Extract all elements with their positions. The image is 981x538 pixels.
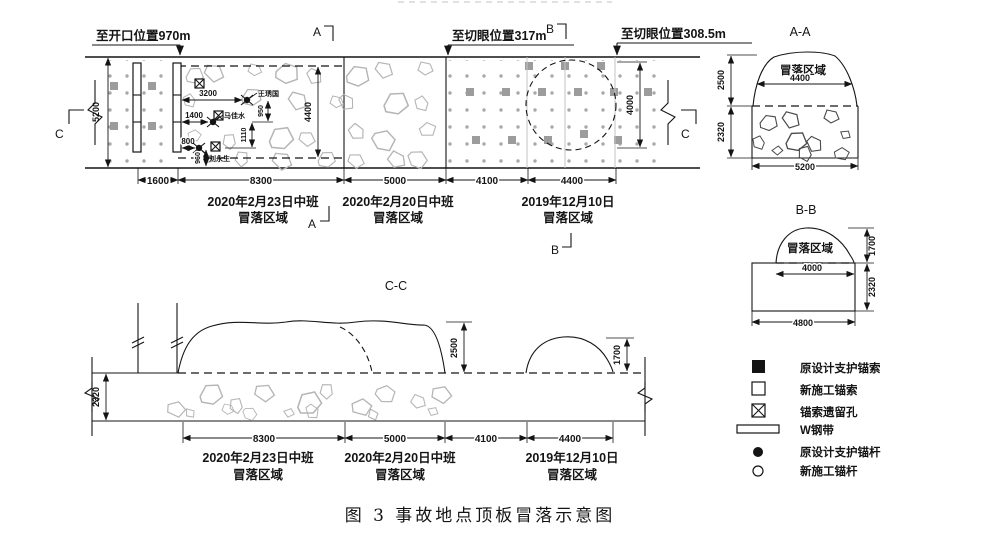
legend-label-4: 原设计支护锚杆 xyxy=(800,445,881,459)
legend-steel-band-icon xyxy=(737,425,779,433)
dim-4400-label: 4400 xyxy=(303,102,313,122)
dim-8300-label: 8300 xyxy=(250,176,273,187)
plan-view: 5200 4400 4000 3200 xyxy=(55,22,752,257)
legend-filled-circle-icon xyxy=(753,447,763,457)
bb-dim-lower: 2320 xyxy=(867,277,877,297)
cc-zone2-area: 冒落区域 xyxy=(375,467,426,482)
cc-zone1-date: 2020年2月23日中班 xyxy=(202,450,314,465)
victim-annotations: 3200 王琇国 950 1400 马佳水 1110 800 xyxy=(181,79,279,166)
section-aa-title: A-A xyxy=(790,25,812,39)
rock-debris-plan-z2 xyxy=(338,58,436,171)
section-mark-c-left: C xyxy=(55,110,84,141)
legend-label-2: 锚索遗留孔 xyxy=(800,405,858,419)
plan-zone-labels: 2020年2月23日中班 冒落区域 2020年2月20日中班 冒落区域 2019… xyxy=(207,194,614,225)
label-to-cut-right: 至切眼位置308.5m xyxy=(621,26,726,41)
legend: 原设计支护锚索 新施工锚索 锚索遗留孔 W钢带 原设计支护锚杆 新施工锚杆 xyxy=(737,360,881,478)
figure-caption: 图 3 事故地点顶板冒落示意图 xyxy=(345,506,616,526)
mark-a-bottom-label: A xyxy=(308,217,316,231)
aa-dim-outer: 5200 xyxy=(795,162,815,172)
legend-open-circle-icon xyxy=(753,466,763,476)
mark-b-bottom-label: B xyxy=(551,243,559,257)
section-mark-b-top: B xyxy=(546,22,566,39)
dim-3200-label: 3200 xyxy=(199,89,217,98)
diagram-canvas: 5200 4400 4000 3200 xyxy=(0,0,981,538)
legend-label-1: 新施工锚索 xyxy=(800,383,858,397)
cc-zone3-area: 冒落区域 xyxy=(547,467,598,482)
section-bb: B-B 冒落区域 4000 1700 2320 4800 xyxy=(752,203,877,328)
cc-mound-outline xyxy=(178,321,445,373)
section-cc-title: C-C xyxy=(385,279,407,293)
cc-dome-outline xyxy=(526,337,613,373)
dim-800-label: 800 xyxy=(181,137,195,146)
zone1-date: 2020年2月23日中班 xyxy=(207,194,319,209)
leader-to-cutmid: 至切眼位置317m xyxy=(448,28,574,55)
section-mark-a-top: A xyxy=(313,25,333,41)
dim-4400b-label: 4400 xyxy=(561,176,584,187)
dim-plan-bottom: 1600 8300 5000 4100 4400 xyxy=(138,168,616,187)
dim-1110-label: 1110 xyxy=(241,127,248,142)
mark-a-top-label: A xyxy=(313,25,321,39)
aa-dim-inner: 4400 xyxy=(790,73,810,83)
victim-name-3: 刘永生 xyxy=(209,154,230,163)
dim-960-label: 960 xyxy=(195,152,202,164)
figure-roof-fall-diagram: 5200 4400 4000 3200 xyxy=(0,0,981,538)
dim-1600-label: 1600 xyxy=(147,176,170,187)
bb-dim-outer: 4800 xyxy=(793,318,813,328)
aa-dim-lower: 2320 xyxy=(716,122,726,142)
zone3-date: 2019年12月10日 xyxy=(521,194,614,209)
legend-label-5: 新施工锚杆 xyxy=(800,464,858,478)
section-bb-title: B-B xyxy=(796,203,817,217)
dim-1400-label: 1400 xyxy=(185,111,203,120)
leader-to-opening: 至开口位置970m xyxy=(92,28,190,55)
cc-dim-4100: 4100 xyxy=(475,434,498,445)
cc-dim-left: 2320 xyxy=(91,387,101,407)
cc-dim-mound: 2500 xyxy=(449,338,459,358)
section-mark-b-bottom: B xyxy=(551,233,571,257)
cc-anchor-cables xyxy=(132,303,183,373)
section-mark-c-right: C xyxy=(681,110,696,141)
legend-label-0: 原设计支护锚索 xyxy=(800,361,881,375)
dim-5000-label: 5000 xyxy=(384,176,407,187)
dim-4000-label: 4000 xyxy=(625,95,635,115)
legend-crossed-square-icon xyxy=(752,404,765,417)
cc-dim-4400: 4400 xyxy=(559,434,582,445)
cc-dim-dome: 1700 xyxy=(612,345,622,365)
zone1-area: 冒落区域 xyxy=(238,210,289,225)
mark-b-top-label: B xyxy=(546,22,554,36)
bb-dim-inner: 4000 xyxy=(802,263,822,273)
dim-5200-label: 5200 xyxy=(91,102,101,122)
victim-name-1: 王琇国 xyxy=(258,89,279,98)
leader-to-cutright: 至切眼位置308.5m xyxy=(617,26,752,55)
cc-zone-labels: 2020年2月23日中班 冒落区域 2020年2月20日中班 冒落区域 2019… xyxy=(202,450,618,482)
section-cc: C-C xyxy=(85,279,652,482)
rock-debris-aa xyxy=(750,108,853,164)
bb-collapse-label: 冒落区域 xyxy=(787,241,833,255)
mark-c-right-label: C xyxy=(681,127,690,141)
legend-label-3: W钢带 xyxy=(800,423,834,437)
zone2-date: 2020年2月20日中班 xyxy=(342,194,454,209)
label-to-opening: 至开口位置970m xyxy=(96,28,190,43)
mark-c-left-label: C xyxy=(55,127,64,141)
cc-dim-8300: 8300 xyxy=(253,434,276,445)
aa-dim-upper: 2500 xyxy=(716,70,726,90)
legend-open-square-icon xyxy=(752,382,765,395)
zone2-area: 冒落区域 xyxy=(373,210,424,225)
cc-zone2-date: 2020年2月20日中班 xyxy=(344,450,456,465)
cc-inner-dashed-boundary xyxy=(340,327,372,372)
section-aa: A-A 冒落区域 4400 2500 2320 xyxy=(716,25,858,172)
cc-dim-5000: 5000 xyxy=(384,434,407,445)
dim-cc-bottom: 8300 5000 4100 4400 xyxy=(183,422,613,445)
section-mark-a-bottom: A xyxy=(308,206,329,231)
label-to-cut-mid: 至切眼位置317m xyxy=(452,28,546,43)
rock-debris-cc xyxy=(165,380,454,422)
dim-4100-label: 4100 xyxy=(476,176,499,187)
bb-dim-upper: 1700 xyxy=(867,236,877,256)
victim-name-2: 马佳水 xyxy=(224,111,246,120)
zone3-area: 冒落区域 xyxy=(543,210,594,225)
legend-filled-square-icon xyxy=(752,360,765,373)
cc-zone3-date: 2019年12月10日 xyxy=(525,450,618,465)
dim-950-label: 950 xyxy=(258,105,265,117)
break-symbol-right xyxy=(661,80,675,145)
cc-zone1-area: 冒落区域 xyxy=(233,467,284,482)
